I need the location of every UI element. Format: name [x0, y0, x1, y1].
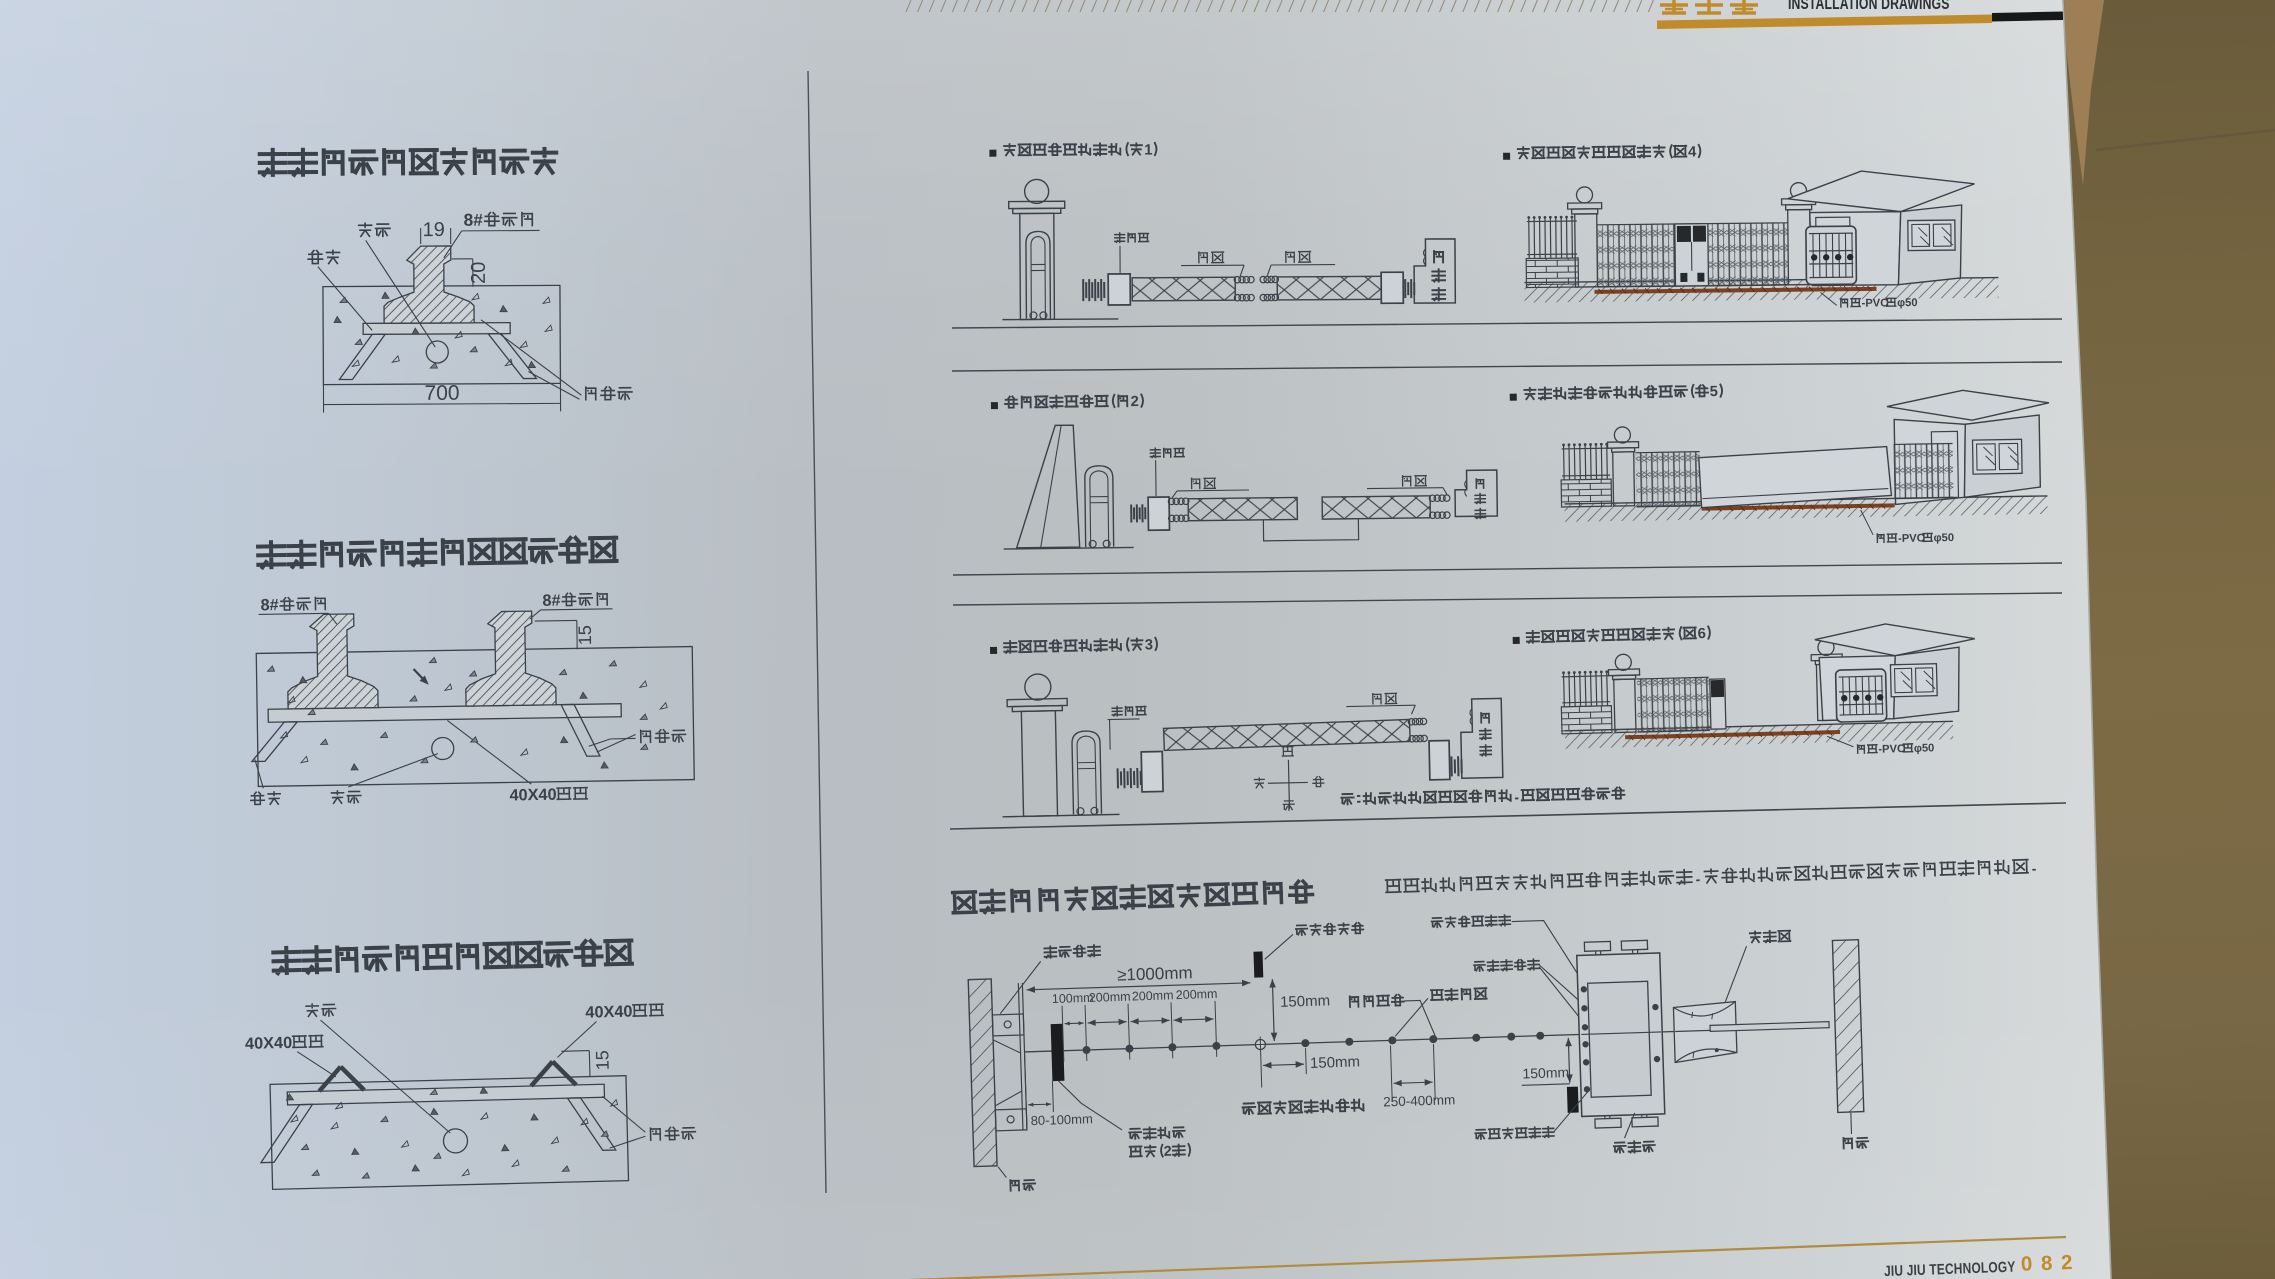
- svg-text:≥1000mm: ≥1000mm: [1117, 963, 1193, 984]
- svg-text:1: 1: [1144, 142, 1152, 158]
- svg-text:40X40: 40X40: [245, 1034, 293, 1053]
- svg-text:8#: 8#: [464, 210, 484, 230]
- svg-text:8#: 8#: [542, 592, 560, 610]
- svg-text:250-400mm: 250-400mm: [1383, 1092, 1455, 1109]
- svg-text:150mm: 150mm: [1310, 1053, 1361, 1072]
- svg-text:4: 4: [1688, 144, 1697, 160]
- svg-text:2: 2: [1163, 1144, 1171, 1160]
- svg-text:-PVC: -PVC: [1898, 533, 1925, 545]
- svg-text:φ50: φ50: [1897, 297, 1918, 309]
- svg-text:150mm: 150mm: [1280, 992, 1331, 1011]
- svg-text:φ50: φ50: [1914, 742, 1935, 754]
- svg-text:150mm: 150mm: [1522, 1064, 1569, 1081]
- svg-text:-PVC: -PVC: [1862, 297, 1889, 309]
- svg-text:200mm: 200mm: [1132, 988, 1174, 1003]
- svg-text:19: 19: [423, 219, 445, 241]
- svg-text:6: 6: [1697, 626, 1706, 642]
- svg-text:200mm: 200mm: [1089, 990, 1131, 1005]
- svg-text:80-100mm: 80-100mm: [1030, 1111, 1093, 1128]
- svg-text:0 8 2: 0 8 2: [2020, 1251, 2074, 1276]
- svg-text:40X40: 40X40: [509, 786, 556, 805]
- svg-text:20: 20: [468, 262, 490, 284]
- svg-text:40X40: 40X40: [585, 1003, 633, 1022]
- svg-text:-PVC: -PVC: [1878, 743, 1905, 756]
- svg-text:100mm: 100mm: [1052, 991, 1094, 1006]
- svg-text:φ50: φ50: [1933, 532, 1954, 544]
- svg-text:5: 5: [1710, 384, 1718, 400]
- svg-text:15: 15: [592, 1050, 612, 1071]
- svg-text:3: 3: [1145, 637, 1154, 653]
- svg-text:INSTALLATION DRAWINGS: INSTALLATION DRAWINGS: [1788, 0, 1950, 13]
- svg-text:JIU JIU TECHNOLOGY: JIU JIU TECHNOLOGY: [1884, 1258, 2016, 1279]
- svg-text:700: 700: [424, 382, 459, 405]
- svg-text:2: 2: [1131, 394, 1139, 410]
- svg-text:8#: 8#: [260, 596, 278, 614]
- svg-text:200mm: 200mm: [1176, 987, 1218, 1002]
- svg-text:15: 15: [575, 625, 595, 645]
